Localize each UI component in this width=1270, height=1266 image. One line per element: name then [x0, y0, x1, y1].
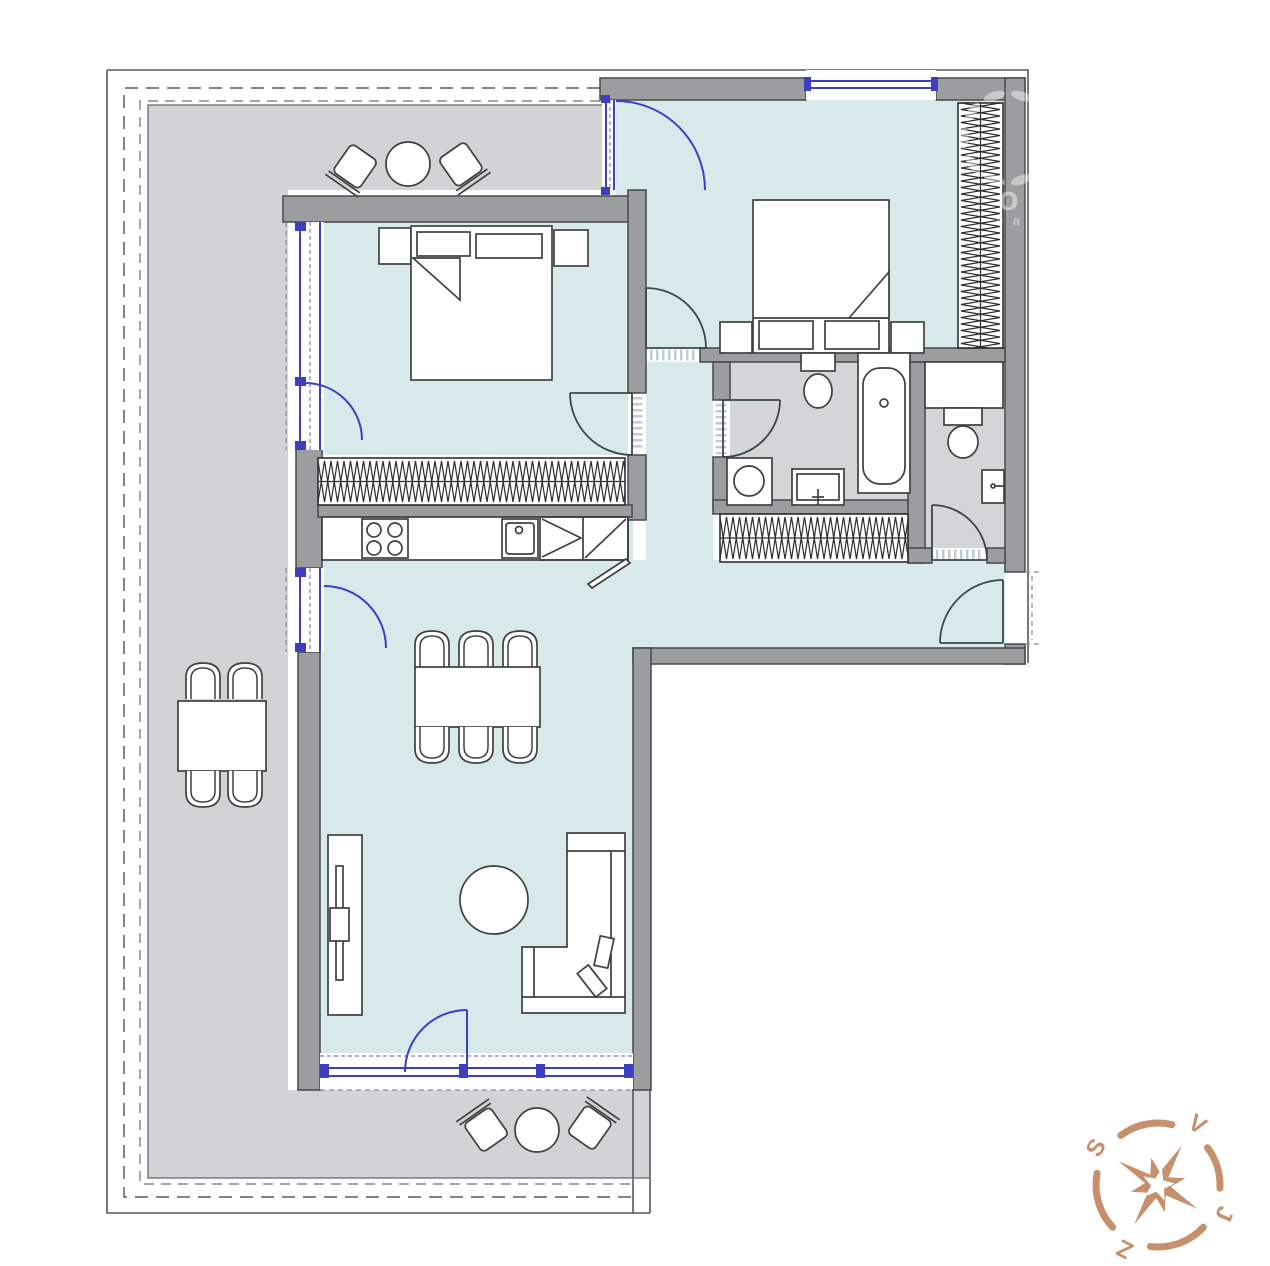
wc-toilet-tank: [944, 408, 982, 425]
dining-chair: [503, 727, 537, 763]
pillow: [417, 232, 470, 256]
compass-north-label: S: [1081, 1134, 1112, 1162]
compass-south-label: J: [1209, 1202, 1239, 1225]
toilet-bowl: [804, 374, 832, 408]
window-mullion: [295, 441, 306, 450]
dining-chair: [459, 727, 493, 763]
nightstand: [554, 230, 588, 266]
dining-chair: [415, 631, 449, 667]
terrace-chair: [228, 663, 262, 699]
terrace-chair: [228, 771, 262, 807]
pillow: [825, 321, 879, 349]
compass-west-label: Z: [1112, 1234, 1137, 1265]
wall-bedrooms-divider: [628, 190, 646, 393]
compass-ring-arc: [1096, 1173, 1113, 1227]
wall-kitchen-separator: [318, 505, 632, 517]
dining-chair: [459, 631, 493, 667]
toilet-tank: [801, 353, 835, 371]
bathtub: [858, 353, 910, 493]
window-mullion: [931, 77, 938, 91]
window-mullion: [601, 187, 610, 195]
wall-bathroom-left-upper: [713, 362, 730, 400]
bedroom2-window-band: [806, 70, 936, 100]
pillow: [476, 234, 542, 258]
wall-wc-bottom-left: [908, 548, 932, 563]
wall-facade-lower: [298, 652, 320, 1090]
terrace-bistro-table: [515, 1108, 559, 1152]
terrace-bistro-table: [386, 142, 430, 186]
dining-table: [415, 667, 540, 727]
window-mullion: [536, 1064, 545, 1078]
pillow: [759, 321, 813, 349]
wall-right-upper: [1005, 78, 1025, 572]
compass-ring-arc: [1150, 1227, 1203, 1247]
hall-niche-floor: [646, 362, 713, 562]
terrace-dining-table: [178, 701, 266, 771]
terrace-chair: [186, 771, 220, 807]
nightstand: [891, 322, 924, 353]
dining-chair: [415, 727, 449, 763]
living-south-band: [320, 1053, 633, 1089]
compass-ring-arc: [1208, 1148, 1220, 1189]
window-mullion: [320, 1064, 329, 1078]
watermark-fragment: e a: [996, 213, 1023, 228]
nightstand: [720, 322, 752, 353]
window-mullion: [295, 643, 306, 652]
dining-chair: [503, 631, 537, 667]
wall-wc-bottom-right: [987, 548, 1005, 563]
wall-living-right: [633, 648, 651, 1090]
floor-plan-drawing: o e a S V J Z: [0, 0, 1270, 1266]
terrace-chair: [186, 663, 220, 699]
round-rug: [460, 866, 528, 934]
compass-rose: S V J Z: [1081, 1109, 1239, 1264]
compass-east-label: V: [1183, 1109, 1211, 1140]
floor-plan-page: o e a S V J Z: [0, 0, 1270, 1266]
window-mullion: [295, 568, 306, 577]
window-mullion: [295, 377, 306, 386]
compass-ring-arc: [1121, 1123, 1172, 1135]
window-mullion: [601, 95, 610, 103]
kitchen-counter: [322, 517, 628, 560]
nightstand: [379, 228, 411, 264]
window-mullion: [295, 222, 306, 231]
wc-counter: [925, 362, 1003, 408]
window-mullion: [804, 77, 811, 91]
wall-hall-bottom: [633, 648, 1025, 664]
wc-toilet-bowl: [948, 426, 978, 458]
hallway-floor: [633, 560, 1005, 648]
wall-bedroom1-top: [283, 196, 632, 222]
tv-mount: [330, 908, 349, 941]
window-mullion: [624, 1064, 633, 1078]
wall-top-left: [600, 78, 806, 100]
